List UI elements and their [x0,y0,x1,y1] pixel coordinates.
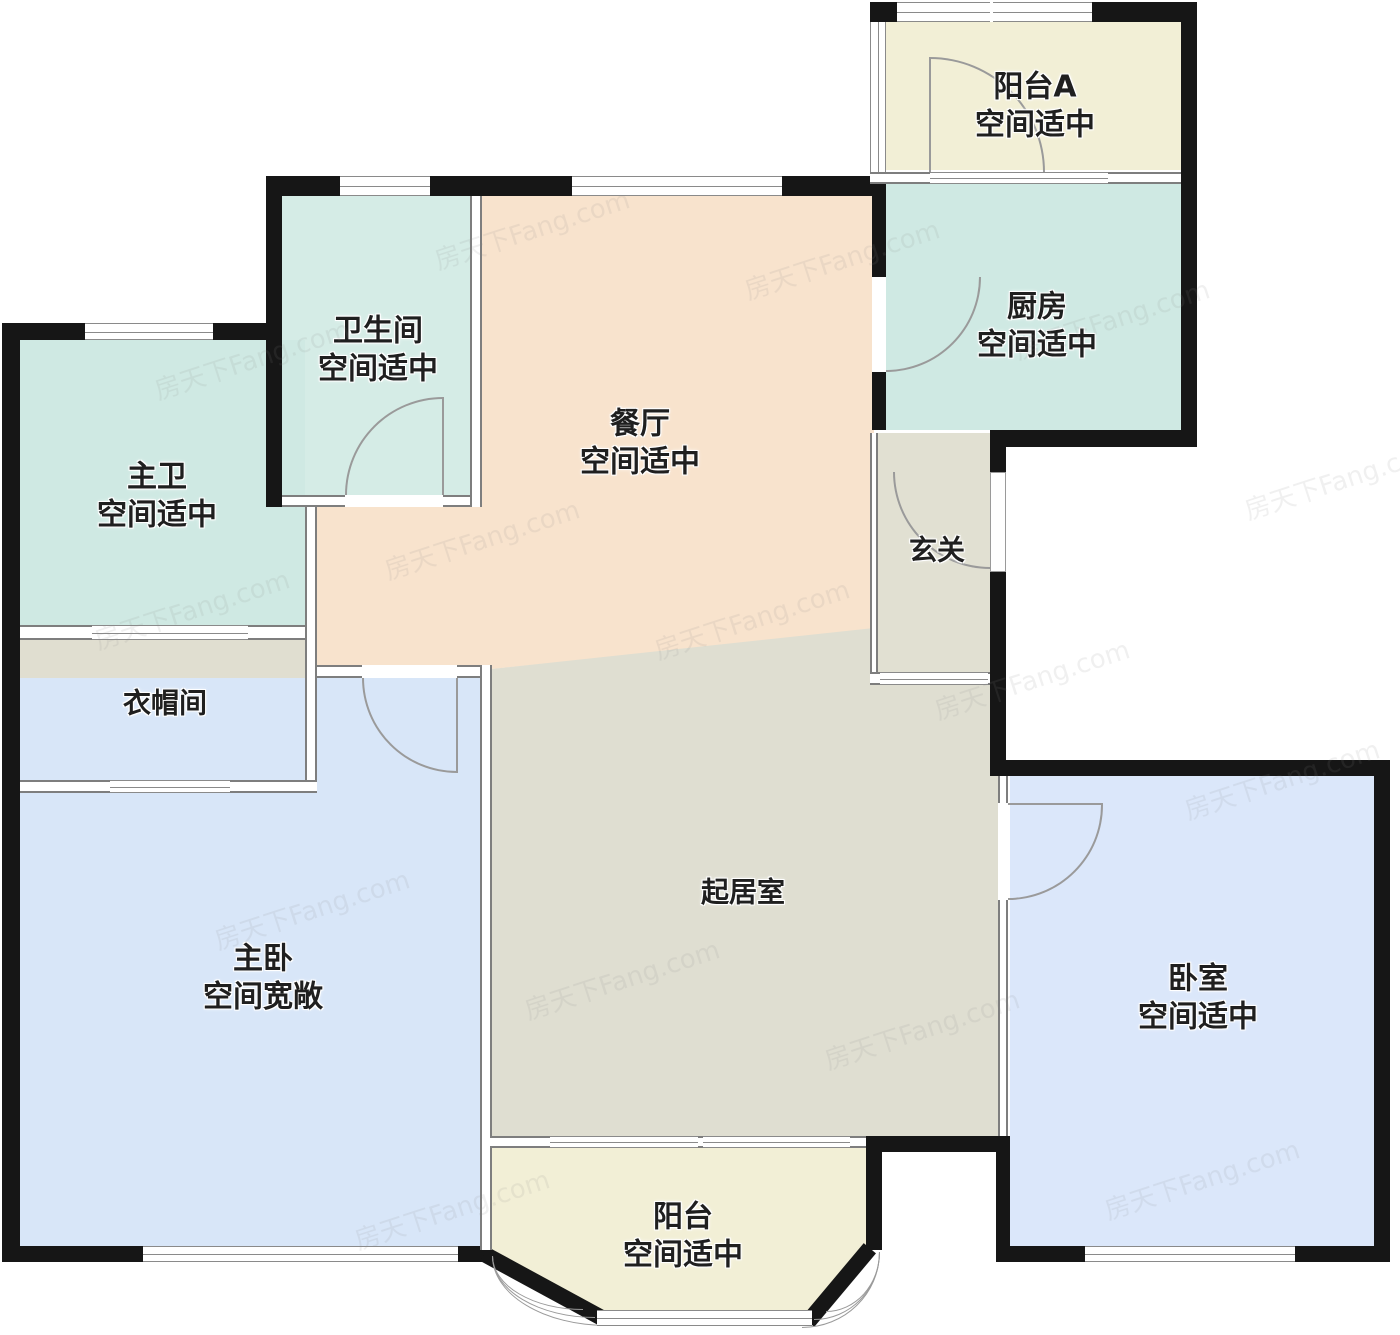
bay-window-arc [826,1252,880,1312]
window [1085,1246,1295,1262]
wall [1295,1246,1390,1262]
bathroom-door-leaf [442,397,444,495]
wall [305,507,317,780]
wall [2,1246,143,1262]
window [85,323,213,340]
floor-plan: 阳台A空间适中 厨房空间适中 卫生间空间适中 主卫空间适中 餐厅空间适中 玄关 … [0,0,1400,1335]
wall [866,1136,1010,1152]
window [92,625,248,640]
label-entry: 玄关 [909,533,965,568]
wall [990,447,1006,472]
wall [1181,2,1197,447]
wall [990,760,1390,776]
window [143,1246,458,1262]
wall [996,1246,1085,1262]
window [897,2,990,22]
window [870,22,886,172]
wall [872,184,886,277]
label-master-bedroom: 主卧空间宽敞 [203,941,323,1016]
wall [266,176,340,196]
balcony-a-door-leaf [929,57,931,172]
window [993,2,1092,22]
bedroom-door-leaf [1008,803,1103,805]
wall [872,372,886,430]
wall [866,1136,882,1250]
master-bedroom-door-leaf [456,678,458,773]
wall [870,433,878,685]
wall [990,430,1197,447]
window [930,172,1108,184]
label-balcony: 阳台空间适中 [623,1199,743,1274]
wall [480,665,492,1250]
wall [2,323,85,340]
label-balcony-a: 阳台A空间适中 [975,69,1095,144]
window [703,1136,850,1148]
window [110,780,230,793]
bay-window-arc [492,1256,583,1310]
label-bedroom: 卧室空间适中 [1138,961,1258,1036]
wall [996,1136,1010,1246]
wall [990,572,1006,776]
watermark: 房天下Fang.com [1239,429,1400,527]
window [340,176,430,196]
window [880,672,988,685]
bathroom-door-opening [345,495,443,507]
wall [430,176,572,196]
wall [2,323,20,1262]
label-bathroom: 卫生间空间适中 [318,313,438,388]
label-cloakroom: 衣帽间 [123,686,207,721]
bedroom-door-opening [998,803,1008,900]
entry-door-opening [990,472,1006,572]
wall [1374,760,1390,1262]
kitchen-door-opening [872,277,886,372]
window [550,1136,698,1148]
label-kitchen: 厨房空间适中 [977,289,1097,364]
master-bedroom-door-opening [362,665,457,678]
label-dining: 餐厅空间适中 [580,406,700,481]
label-master-bath: 主卫空间适中 [97,459,217,534]
wall [266,176,282,507]
label-living: 起居室 [701,875,785,910]
window [572,176,782,196]
wall [870,2,897,22]
window [597,1310,812,1326]
wall [470,196,482,507]
